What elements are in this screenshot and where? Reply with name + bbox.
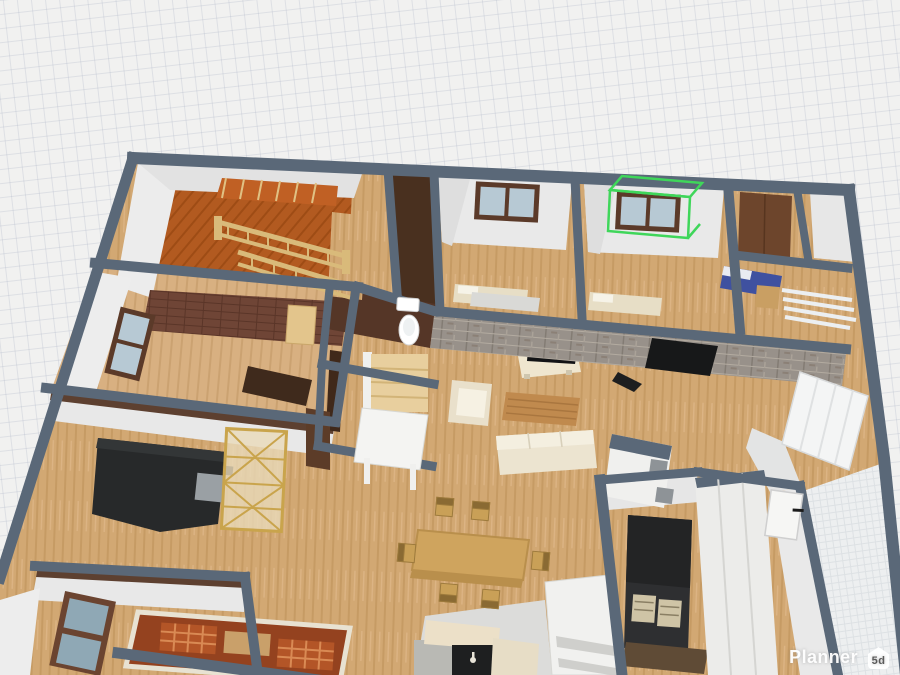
watermark-brand-text: Planner — [789, 647, 858, 668]
wardrobe-bedroom-3[interactable] — [695, 470, 778, 675]
wardrobe-top-right[interactable] — [738, 192, 792, 258]
rug[interactable] — [502, 392, 580, 426]
watermark-badge-text: 5d — [872, 655, 886, 667]
dining-table[interactable] — [410, 530, 529, 588]
planner5d-watermark: Planner 5d — [789, 645, 892, 670]
etagere[interactable] — [221, 428, 286, 531]
armchair[interactable] — [448, 380, 492, 426]
hall-cabinet[interactable] — [286, 305, 317, 345]
window-bedroom-1[interactable] — [474, 181, 540, 222]
sofa[interactable] — [496, 430, 597, 475]
planner5d-3d-viewport[interactable]: Planner 5d — [0, 0, 900, 675]
planner5d-logo-icon: 5d — [865, 645, 892, 670]
scene-3d-view[interactable] — [0, 0, 900, 675]
double-bed[interactable] — [624, 515, 692, 654]
